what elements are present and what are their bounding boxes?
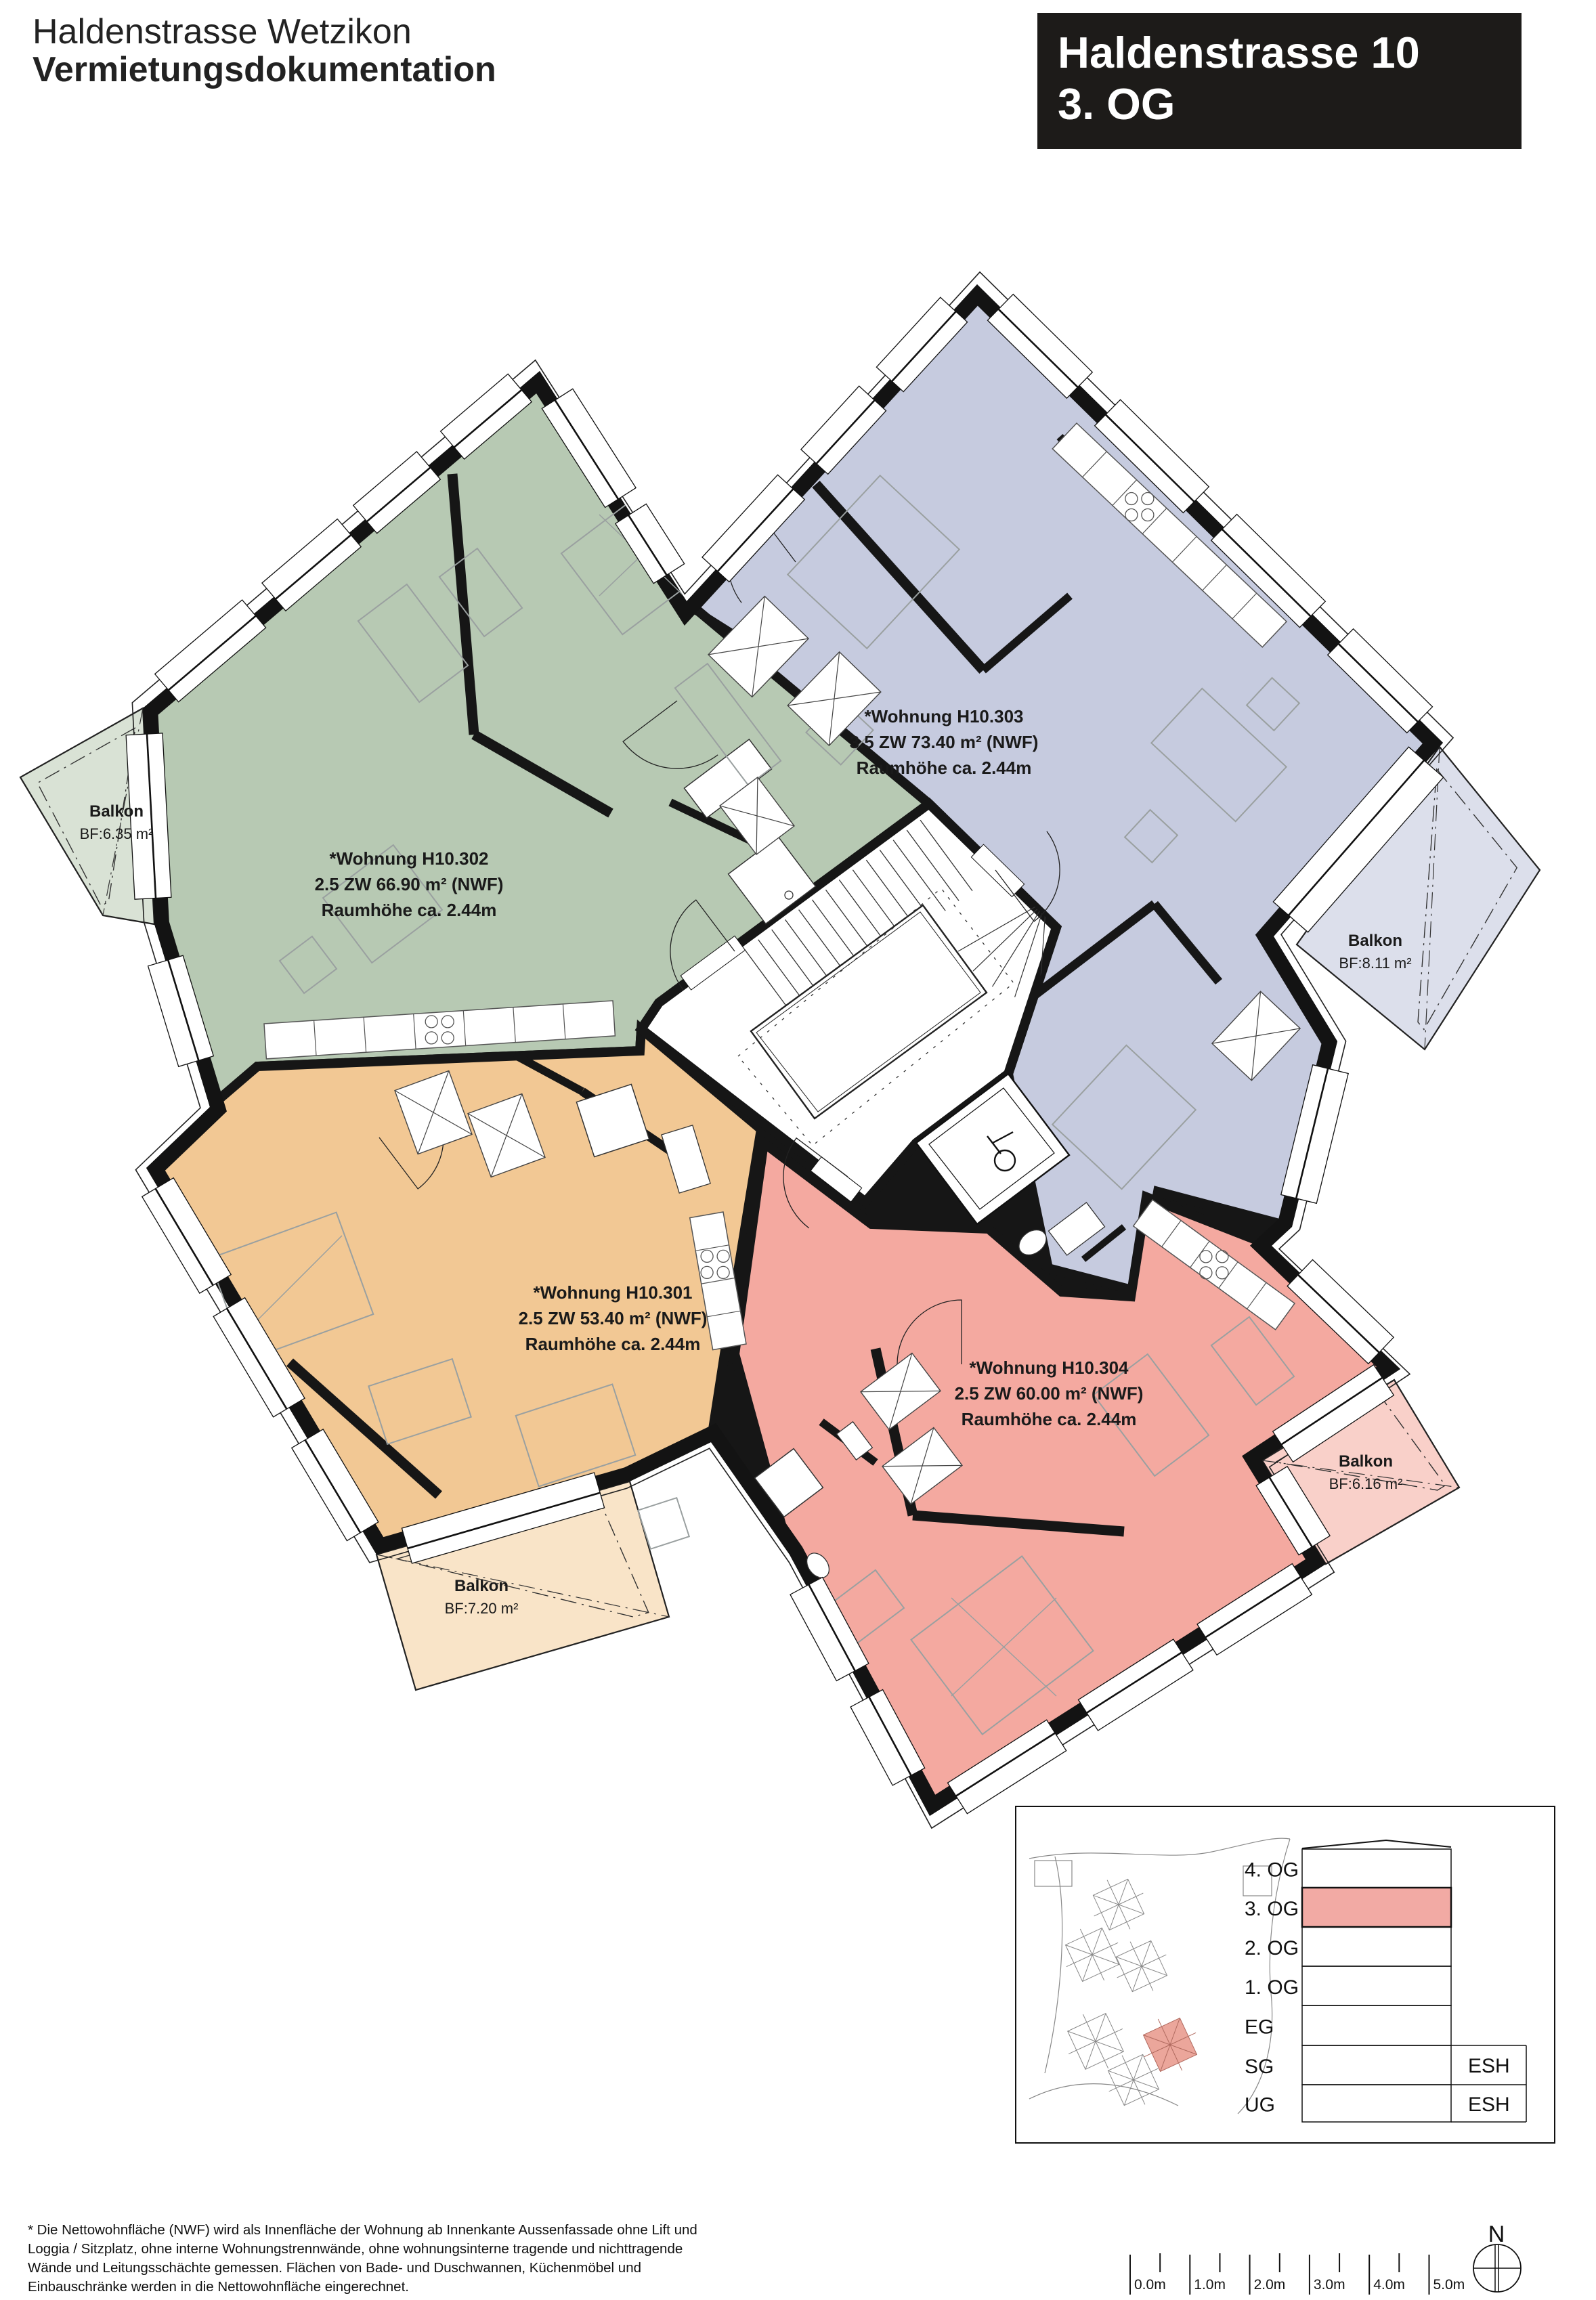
svg-text:2.5 ZW 60.00 m² (NWF): 2.5 ZW 60.00 m² (NWF) <box>955 1383 1144 1404</box>
svg-text:3.0m: 3.0m <box>1314 2277 1345 2293</box>
svg-text:2.0m: 2.0m <box>1254 2277 1286 2293</box>
svg-text:5.0m: 5.0m <box>1433 2277 1465 2293</box>
svg-text:2. OG: 2. OG <box>1245 1937 1299 1959</box>
svg-text:*Wohnung H10.302: *Wohnung H10.302 <box>329 848 488 869</box>
svg-text:2.5 ZW 53.40 m² (NWF): 2.5 ZW 53.40 m² (NWF) <box>519 1308 708 1328</box>
svg-text:SG: SG <box>1245 2056 1274 2078</box>
svg-text:Balkon: Balkon <box>1339 1452 1393 1471</box>
svg-text:*Wohnung H10.301: *Wohnung H10.301 <box>533 1282 692 1303</box>
svg-text:UG: UG <box>1245 2094 1275 2117</box>
svg-text:0.0m: 0.0m <box>1134 2277 1166 2293</box>
svg-text:4.0m: 4.0m <box>1373 2277 1405 2293</box>
svg-text:1.0m: 1.0m <box>1194 2277 1226 2293</box>
svg-text:BF:6.16 m²: BF:6.16 m² <box>1329 1475 1403 1492</box>
svg-text:Balkon: Balkon <box>89 802 144 821</box>
svg-text:3. OG: 3. OG <box>1245 1898 1299 1920</box>
svg-text:EG: EG <box>1245 2016 1274 2039</box>
svg-text:Balkon: Balkon <box>1348 932 1402 950</box>
svg-text:ESH: ESH <box>1468 2055 1510 2077</box>
svg-text:BF:8.11 m²: BF:8.11 m² <box>1339 955 1411 972</box>
svg-text:BF:7.20 m²: BF:7.20 m² <box>445 1600 519 1617</box>
svg-text:Raumhöhe ca. 2.44m: Raumhöhe ca. 2.44m <box>322 900 497 920</box>
svg-text:Raumhöhe ca. 2.44m: Raumhöhe ca. 2.44m <box>962 1409 1137 1429</box>
svg-text:2.5 ZW 66.90 m² (NWF): 2.5 ZW 66.90 m² (NWF) <box>315 874 504 894</box>
svg-text:ESH: ESH <box>1468 2093 1510 2116</box>
svg-text:Balkon: Balkon <box>454 1577 509 1595</box>
svg-text:Raumhöhe ca. 2.44m: Raumhöhe ca. 2.44m <box>857 758 1032 778</box>
svg-text:4. OG: 4. OG <box>1245 1859 1299 1882</box>
svg-text:3.5 ZW 73.40 m² (NWF): 3.5 ZW 73.40 m² (NWF) <box>850 732 1039 752</box>
svg-text:Raumhöhe ca. 2.44m: Raumhöhe ca. 2.44m <box>525 1334 701 1354</box>
svg-text:BF:6.35 m²: BF:6.35 m² <box>80 825 154 842</box>
svg-text:1. OG: 1. OG <box>1245 1976 1299 1999</box>
svg-text:N: N <box>1488 2221 1505 2247</box>
svg-text:*Wohnung H10.304: *Wohnung H10.304 <box>969 1358 1129 1378</box>
svg-text:*Wohnung H10.303: *Wohnung H10.303 <box>864 706 1023 726</box>
